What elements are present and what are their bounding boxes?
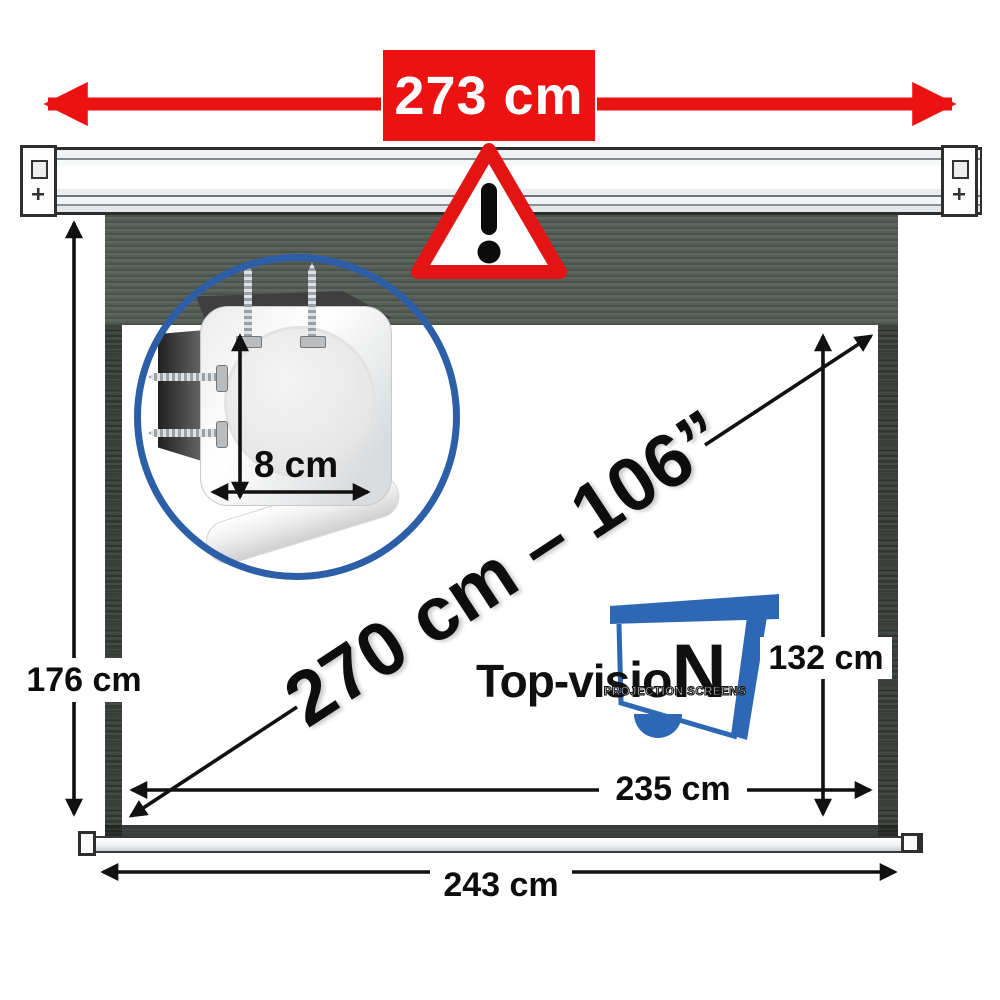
brand-name-prefix: Top-vis [476, 654, 629, 708]
dimension-label-viewing-height: 132 cm [760, 637, 892, 679]
dimension-label-viewing-width: 235 cm [599, 768, 747, 810]
slat-end-cap-right [901, 833, 923, 853]
screw-cross-icon [32, 188, 44, 200]
product-diagram: Top-visioN PROJECTION SCREENS 273 cm [0, 0, 1000, 1000]
brand-tagline: PROJECTION SCREENS [600, 686, 750, 698]
dimension-label-total-height: 176 cm [22, 658, 146, 702]
bottom-slat [93, 836, 905, 853]
fabric-border-right [878, 325, 898, 838]
bracket-slot-icon [952, 160, 969, 179]
dimension-label-case-depth: 8 cm [250, 443, 342, 485]
screw-cross-icon [953, 188, 965, 200]
brand-name: Top-visioN [476, 628, 724, 715]
screen-case [20, 147, 982, 215]
case-end-cap-left [20, 145, 57, 217]
bracket-slot-icon [31, 160, 48, 179]
slat-end-cap-left [78, 831, 96, 856]
dimension-label-fabric-width: 243 cm [430, 864, 572, 906]
brand-name-mid: io [629, 651, 671, 709]
inset-circle [134, 254, 460, 580]
brand-name-suffix: N [672, 628, 725, 715]
case-width-callout: 273 cm [383, 50, 595, 141]
case-end-cap-right [941, 145, 978, 217]
fabric-border-left [105, 325, 122, 838]
